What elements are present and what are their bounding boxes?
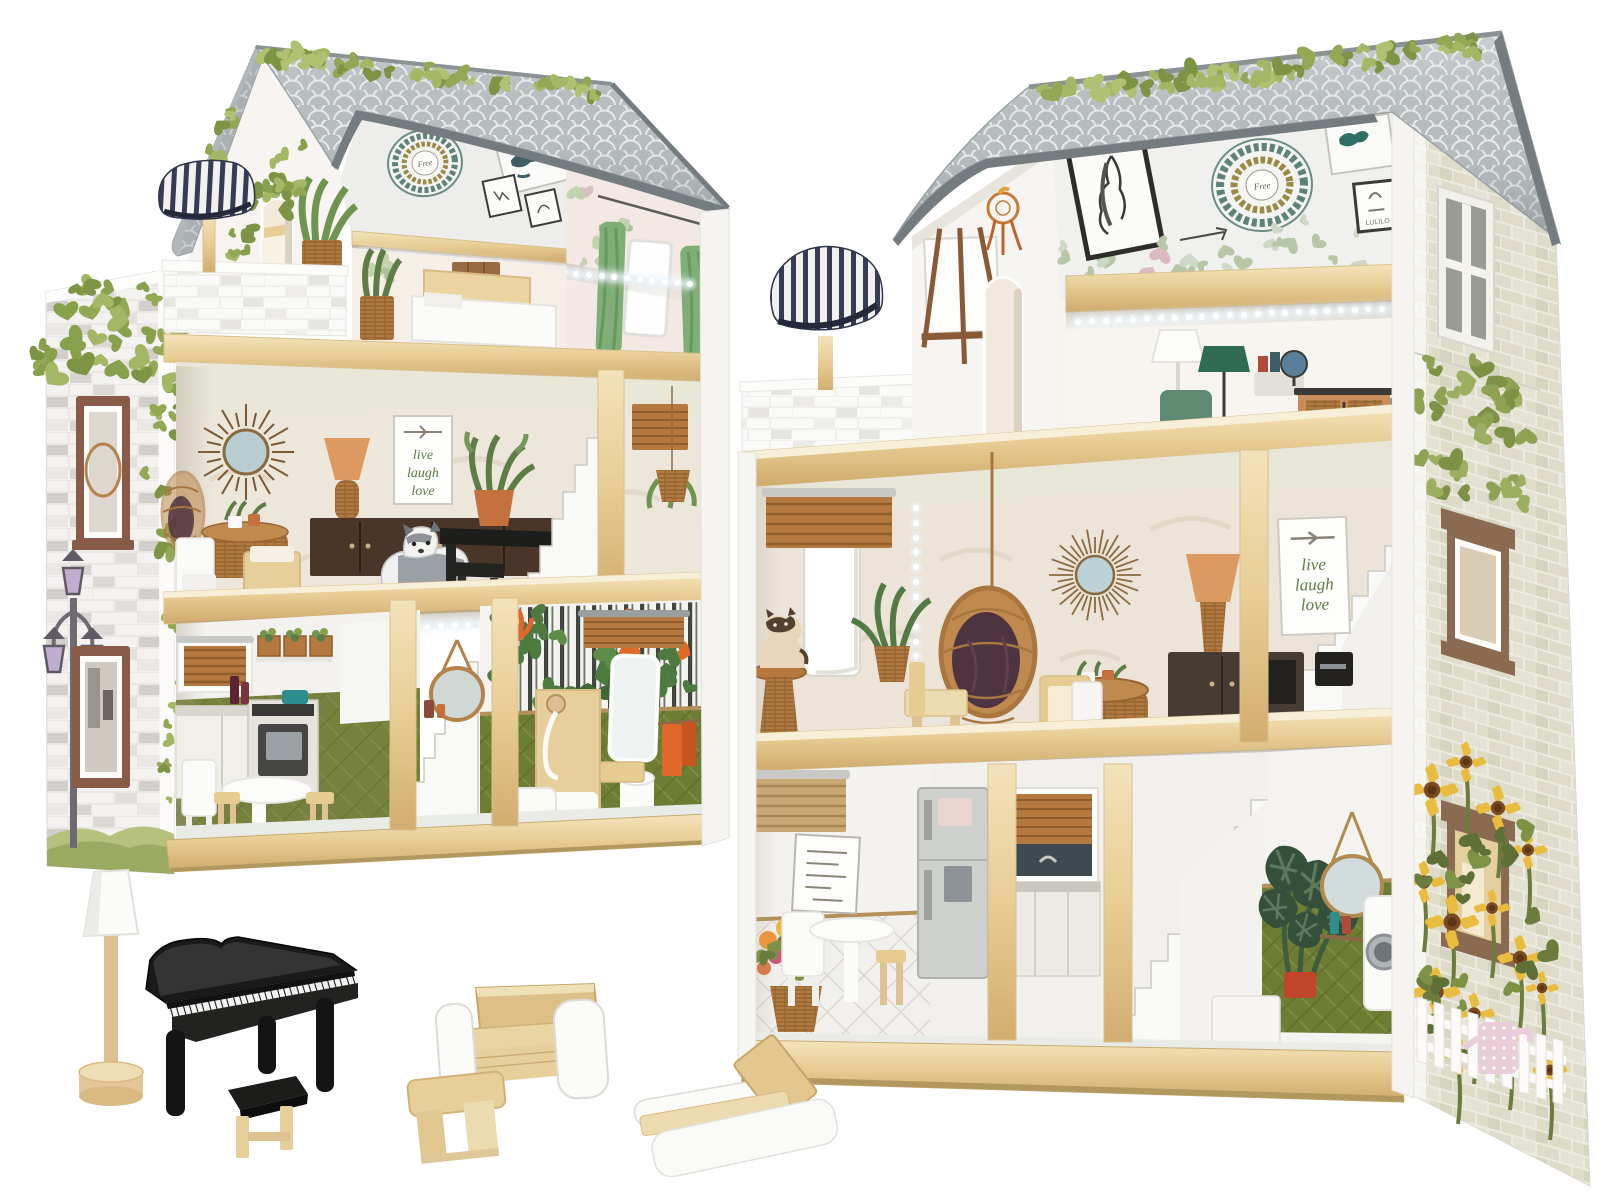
svg-text:live: live bbox=[1301, 555, 1327, 575]
svg-text:love: love bbox=[1301, 594, 1330, 614]
svg-text:live: live bbox=[413, 448, 433, 463]
svg-text:laugh: laugh bbox=[407, 466, 439, 481]
svg-text:Free: Free bbox=[1252, 180, 1271, 192]
svg-text:love: love bbox=[411, 484, 434, 499]
svg-text:laugh: laugh bbox=[1295, 574, 1334, 594]
